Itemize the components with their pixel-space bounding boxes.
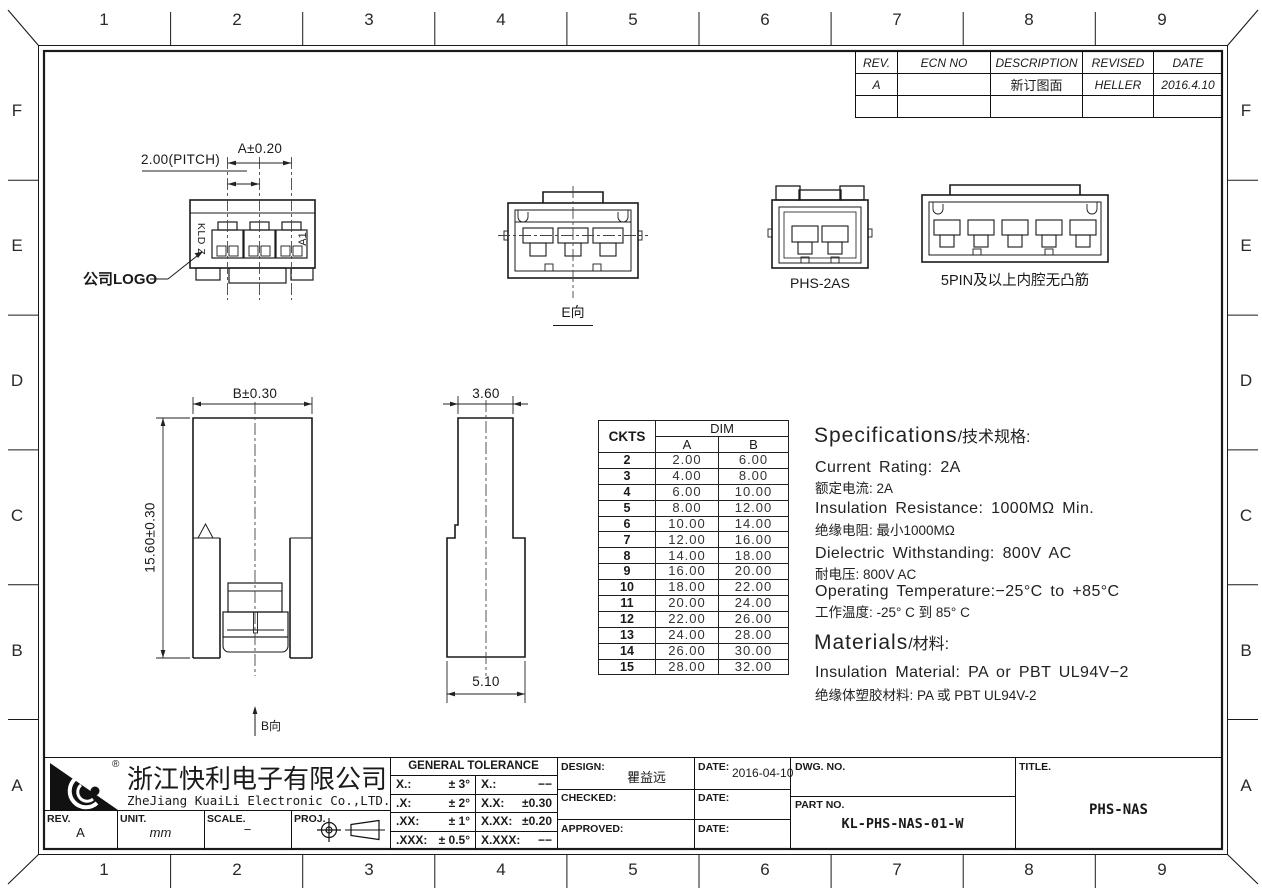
tol-label: X.: bbox=[396, 777, 411, 791]
divider bbox=[291, 810, 292, 850]
tol-label: .X: bbox=[396, 796, 411, 810]
divider bbox=[790, 796, 1015, 797]
logo-callout: 公司LOGO bbox=[83, 268, 157, 289]
dim-a: A±0.20 bbox=[224, 141, 296, 156]
tol-label: X.XX: bbox=[481, 814, 512, 828]
checked-label: CHECKED: bbox=[561, 792, 616, 804]
grid-row-label: E bbox=[1233, 236, 1259, 256]
revision-row bbox=[856, 96, 1223, 118]
cell: 20.00 bbox=[719, 564, 789, 580]
rev-header: REV. bbox=[856, 52, 898, 74]
view-5pin bbox=[922, 185, 1108, 262]
ckts-header: CKTS bbox=[599, 421, 656, 453]
unit-label: UNIT. bbox=[120, 813, 146, 825]
materials-title-cn: /材料: bbox=[908, 636, 949, 653]
grid-row-label: C bbox=[4, 506, 30, 526]
materials-title: Materials/材料: bbox=[814, 630, 949, 655]
tol-value: −− bbox=[538, 833, 552, 847]
tol-value: ± 1° bbox=[449, 814, 470, 828]
cell: 5 bbox=[599, 500, 656, 516]
cell: 30.00 bbox=[719, 643, 789, 659]
table-row: 1222.0026.00 bbox=[599, 611, 789, 627]
specifications-title-en: Specifications bbox=[814, 424, 958, 447]
cell: 12.00 bbox=[656, 532, 719, 548]
tolerance-cell: .X:± 2° bbox=[391, 794, 475, 813]
dim-5-10: 5.10 bbox=[450, 674, 522, 689]
tolerance-cell: .XXX:± 0.5° bbox=[391, 831, 475, 850]
tol-label: X.X: bbox=[481, 796, 504, 810]
tolerance-cell: X.XXX:−− bbox=[476, 831, 557, 850]
table-row: 1426.0030.00 bbox=[599, 643, 789, 659]
spec-dielectric-cn: 耐电压: 800V AC bbox=[815, 563, 916, 583]
tol-value: ± 2° bbox=[449, 796, 470, 810]
cell: 2 bbox=[599, 453, 656, 469]
cell: 32.00 bbox=[719, 659, 789, 675]
dim-pitch: 2.00(PITCH) bbox=[141, 152, 220, 167]
date-header: DATE bbox=[1154, 52, 1223, 74]
cell: A bbox=[856, 74, 898, 96]
cell: 新订图面 bbox=[991, 74, 1083, 96]
table-row: 916.0020.00 bbox=[599, 564, 789, 580]
materials-title-en: Materials bbox=[814, 631, 908, 654]
title-block: REV. A UNIT. mm SCALE. − PROJ. GENERAL T… bbox=[44, 757, 1222, 850]
spec-current-en: Current Rating: 2A bbox=[815, 459, 961, 477]
scale-value: − bbox=[204, 822, 291, 837]
unit-value: mm bbox=[117, 825, 204, 840]
grid-col-label: 1 bbox=[84, 860, 124, 880]
grid-col-label: 6 bbox=[745, 10, 785, 30]
rev-value: A bbox=[44, 825, 117, 840]
grid-row-label: D bbox=[1233, 371, 1259, 391]
cell: 9 bbox=[599, 564, 656, 580]
title-value: PHS-NAS bbox=[1015, 802, 1222, 818]
cell: 22.00 bbox=[656, 611, 719, 627]
cell: 26.00 bbox=[719, 611, 789, 627]
grid-col-label: 2 bbox=[217, 10, 257, 30]
cell: 18.00 bbox=[656, 580, 719, 596]
tol-label: .XXX: bbox=[396, 833, 427, 847]
grid-col-label: 8 bbox=[1009, 10, 1049, 30]
tol-label: .XX: bbox=[396, 814, 419, 828]
spec-dielectric-en: Dielectric Withstanding: 800V AC bbox=[815, 545, 1072, 563]
cell: 8 bbox=[599, 548, 656, 564]
spec-insulation-en: Insulation Resistance: 1000MΩ Min. bbox=[815, 500, 1094, 518]
cell: 12 bbox=[599, 611, 656, 627]
grid-col-label: 9 bbox=[1142, 10, 1182, 30]
ecn-header: ECN NO bbox=[898, 52, 991, 74]
cell: 14.00 bbox=[656, 548, 719, 564]
divider bbox=[557, 789, 790, 790]
revision-row: A 新订图面 HELLER 2016.4.10 bbox=[856, 74, 1223, 96]
grid-row-label: C bbox=[1233, 506, 1259, 526]
description-header: DESCRIPTION bbox=[991, 52, 1083, 74]
phs-2as-label: PHS-2AS bbox=[776, 275, 864, 291]
divider bbox=[557, 819, 790, 820]
table-row: 1018.0022.00 bbox=[599, 580, 789, 596]
tol-value: ±0.20 bbox=[522, 814, 552, 828]
table-row: 1120.0024.00 bbox=[599, 596, 789, 612]
marking-a1: A1 bbox=[297, 225, 309, 253]
grid-col-label: 4 bbox=[481, 860, 521, 880]
cell: 24.00 bbox=[656, 627, 719, 643]
view-phs-2as bbox=[768, 186, 872, 268]
grid-row-label: A bbox=[4, 776, 30, 796]
view-top-3pin bbox=[142, 157, 315, 300]
grid-col-label: 3 bbox=[349, 860, 389, 880]
col-b-header: B bbox=[719, 437, 789, 453]
cell: 14.00 bbox=[719, 516, 789, 532]
table-row: 22.006.00 bbox=[599, 453, 789, 469]
grid-row-label: F bbox=[4, 101, 30, 121]
tolerance-header: GENERAL TOLERANCE bbox=[390, 758, 557, 776]
cell: 22.00 bbox=[719, 580, 789, 596]
cell: 11 bbox=[599, 596, 656, 612]
tolerance-cell: X.:−− bbox=[476, 775, 557, 794]
dim-b-width: B±0.30 bbox=[212, 386, 298, 401]
revision-header-row: REV. ECN NO DESCRIPTION REVISED DATE bbox=[856, 52, 1223, 74]
part-no-value: KL-PHS-NAS-01-W bbox=[790, 816, 1015, 832]
cell: 18.00 bbox=[719, 548, 789, 564]
spec-current-cn: 额定电流: 2A bbox=[815, 477, 893, 497]
cell: 24.00 bbox=[719, 596, 789, 612]
cell: 10.00 bbox=[656, 516, 719, 532]
tol-value: ± 0.5° bbox=[439, 833, 470, 847]
design-value: 瞿益远 bbox=[599, 767, 694, 786]
table-row: 58.0012.00 bbox=[599, 500, 789, 516]
col-a-header: A bbox=[656, 437, 719, 453]
cell bbox=[1154, 96, 1223, 118]
cell: 13 bbox=[599, 627, 656, 643]
grid-col-label: 3 bbox=[349, 10, 389, 30]
dwg-no-label: DWG. NO. bbox=[795, 761, 845, 773]
grid-row-label: E bbox=[4, 236, 30, 256]
table-row: 712.0016.00 bbox=[599, 532, 789, 548]
spec-material-en: Insulation Material: PA or PBT UL94V−2 bbox=[815, 664, 1129, 682]
grid-row-label: A bbox=[1233, 776, 1259, 796]
grid-col-label: 7 bbox=[877, 10, 917, 30]
grid-col-label: 2 bbox=[217, 860, 257, 880]
grid-col-label: 5 bbox=[613, 10, 653, 30]
table-row: 1528.0032.00 bbox=[599, 659, 789, 675]
grid-col-label: 4 bbox=[481, 10, 521, 30]
tol-value: ±0.30 bbox=[522, 796, 552, 810]
tolerance-cell: X.X:±0.30 bbox=[476, 794, 557, 813]
cell: 6.00 bbox=[719, 453, 789, 469]
cell: 14 bbox=[599, 643, 656, 659]
cell: 10.00 bbox=[719, 484, 789, 500]
tol-label: X.: bbox=[481, 777, 496, 791]
design-date-value: 2016-04-10 bbox=[732, 766, 793, 780]
spec-material-cn: 绝缘体塑胶材料: PA 或 PBT UL94V-2 bbox=[815, 684, 1037, 704]
table-row: 34.008.00 bbox=[599, 468, 789, 484]
divider bbox=[44, 810, 390, 811]
grid-row-label: B bbox=[4, 641, 30, 661]
grid-col-label: 7 bbox=[877, 860, 917, 880]
view-b-front bbox=[156, 397, 312, 736]
cell bbox=[898, 74, 991, 96]
dim-3-60: 3.60 bbox=[450, 386, 522, 401]
cell bbox=[991, 96, 1083, 118]
divider bbox=[694, 758, 695, 850]
tol-value: ± 3° bbox=[449, 777, 470, 791]
specifications-title-cn: /技术规格: bbox=[958, 429, 1031, 446]
ckts-dim-table: CKTS DIM A B 22.006.00 34.008.00 46.0010… bbox=[598, 420, 789, 675]
cell: 16.00 bbox=[719, 532, 789, 548]
b-view-label: B向 bbox=[261, 717, 281, 734]
divider bbox=[557, 758, 558, 850]
approved-date-label: DATE: bbox=[698, 823, 729, 835]
cell: HELLER bbox=[1083, 74, 1154, 96]
grid-row-label: B bbox=[1233, 641, 1259, 661]
cell bbox=[898, 96, 991, 118]
cell bbox=[1083, 96, 1154, 118]
cell: 8.00 bbox=[656, 500, 719, 516]
e-view-label: E向 bbox=[553, 302, 593, 326]
grid-row-label: D bbox=[4, 371, 30, 391]
grid-col-label: 1 bbox=[84, 10, 124, 30]
checked-date-label: DATE: bbox=[698, 792, 729, 804]
table-row: 46.0010.00 bbox=[599, 484, 789, 500]
title-label: TITLE. bbox=[1019, 761, 1051, 773]
tol-label: X.XXX: bbox=[481, 833, 520, 847]
spec-insulation-cn: 绝缘电阻: 最小1000MΩ bbox=[815, 519, 955, 539]
table-row: 814.0018.00 bbox=[599, 548, 789, 564]
grid-col-label: 8 bbox=[1009, 860, 1049, 880]
tolerance-cell: X.XX:±0.20 bbox=[476, 812, 557, 831]
cell: 26.00 bbox=[656, 643, 719, 659]
projection-label: PROJ. bbox=[294, 813, 326, 825]
cell: 8.00 bbox=[719, 468, 789, 484]
spec-temperature-en: Operating Temperature:−25°C to +85°C bbox=[815, 583, 1120, 601]
cell: 3 bbox=[599, 468, 656, 484]
cell: 6.00 bbox=[656, 484, 719, 500]
grid-col-label: 5 bbox=[613, 860, 653, 880]
cell: 7 bbox=[599, 532, 656, 548]
dim-header: DIM bbox=[656, 421, 789, 437]
cell: 4 bbox=[599, 484, 656, 500]
marking-kld-z: KLD Z bbox=[195, 217, 207, 261]
grid-row-label: F bbox=[1233, 101, 1259, 121]
view-front-e bbox=[498, 186, 648, 298]
approved-label: APPROVED: bbox=[561, 823, 623, 835]
grid-col-label: 9 bbox=[1142, 860, 1182, 880]
cell: 10 bbox=[599, 580, 656, 596]
cell: 28.00 bbox=[719, 627, 789, 643]
cell bbox=[856, 96, 898, 118]
dim-height: 15.60±0.30 bbox=[143, 492, 158, 584]
cell: 15 bbox=[599, 659, 656, 675]
cell: 2016.4.10 bbox=[1154, 74, 1223, 96]
rev-label: REV. bbox=[47, 813, 71, 825]
tolerance-cell: X.:± 3° bbox=[391, 775, 475, 794]
tolerance-cell: .XX:± 1° bbox=[391, 812, 475, 831]
cell: 6 bbox=[599, 516, 656, 532]
cell: 16.00 bbox=[656, 564, 719, 580]
tol-value: −− bbox=[538, 777, 552, 791]
spec-temperature-cn: 工作温度: -25° C 到 85° C bbox=[815, 601, 970, 621]
table-row: 610.0014.00 bbox=[599, 516, 789, 532]
revision-table: REV. ECN NO DESCRIPTION REVISED DATE A 新… bbox=[855, 51, 1223, 118]
table-row: 1324.0028.00 bbox=[599, 627, 789, 643]
cell: 28.00 bbox=[656, 659, 719, 675]
grid-col-label: 6 bbox=[745, 860, 785, 880]
drawing-sheet: 1 2 3 4 5 6 7 8 9 1 2 3 4 5 6 7 8 9 F E … bbox=[0, 0, 1262, 892]
revised-header: REVISED bbox=[1083, 52, 1154, 74]
cell: 12.00 bbox=[719, 500, 789, 516]
design-date-label: DATE: bbox=[698, 761, 729, 773]
five-pin-note: 5PIN及以上内腔无凸筋 bbox=[918, 269, 1112, 290]
cell: 4.00 bbox=[656, 468, 719, 484]
cell: 2.00 bbox=[656, 453, 719, 469]
part-no-label: PART NO. bbox=[795, 799, 844, 811]
view-side-profile bbox=[443, 396, 528, 703]
cell: 20.00 bbox=[656, 596, 719, 612]
specifications-title: Specifications/技术规格: bbox=[814, 423, 1030, 448]
